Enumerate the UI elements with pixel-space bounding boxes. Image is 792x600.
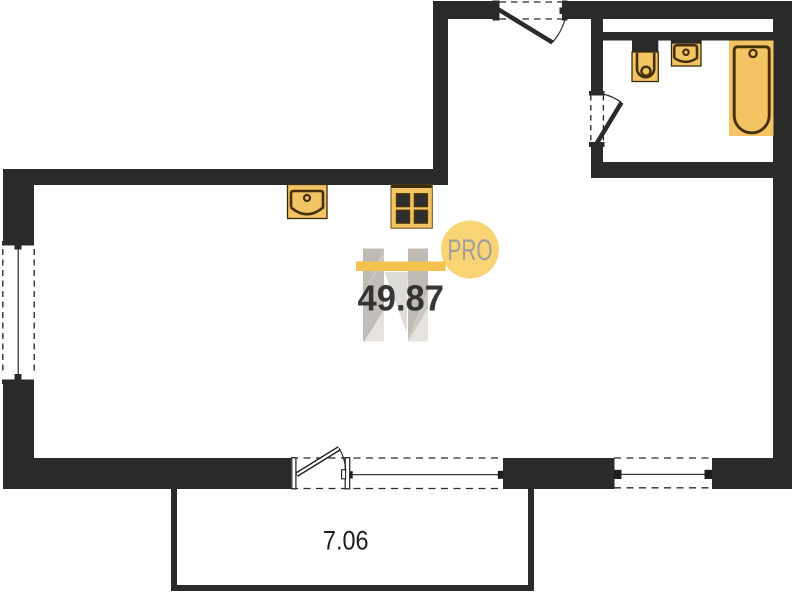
svg-text:7.06: 7.06	[323, 525, 369, 555]
svg-text:PRO: PRO	[448, 234, 493, 267]
svg-text:49.87: 49.87	[358, 277, 445, 318]
